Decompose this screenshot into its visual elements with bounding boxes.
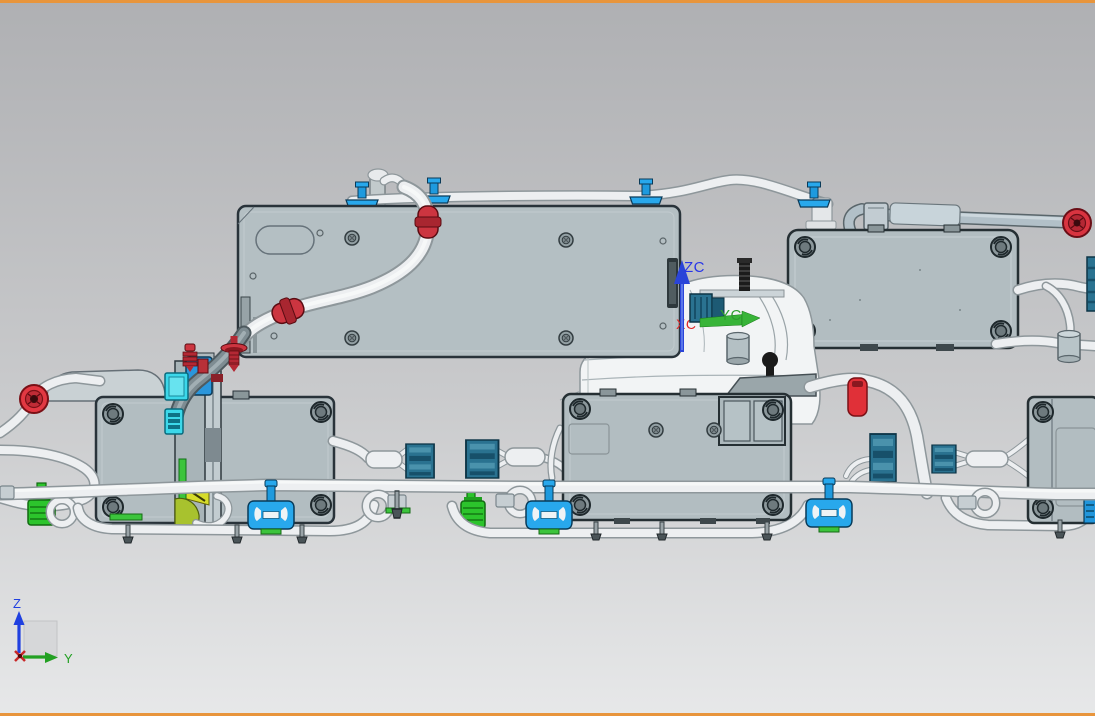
housing-cylinder[interactable] bbox=[727, 333, 749, 365]
triad-box bbox=[24, 621, 57, 656]
teal-connector[interactable] bbox=[870, 434, 896, 482]
teal-connector[interactable] bbox=[466, 440, 499, 478]
cad-viewport[interactable]: XC ZC YC bbox=[0, 0, 1095, 716]
corner-boss bbox=[991, 237, 1011, 257]
module-screw bbox=[707, 423, 721, 437]
corner-boss bbox=[570, 495, 590, 515]
corner-boss bbox=[1033, 402, 1053, 422]
right-module[interactable] bbox=[1028, 397, 1095, 523]
cyan-connector-1[interactable] bbox=[165, 373, 188, 400]
green-pad bbox=[110, 514, 142, 520]
module-screw bbox=[649, 423, 663, 437]
tube-strap[interactable] bbox=[0, 486, 14, 499]
panel-screw bbox=[559, 331, 573, 345]
corner-boss bbox=[570, 399, 590, 419]
corner-boss bbox=[311, 495, 331, 515]
corner-boss bbox=[795, 237, 815, 257]
triad-label-y: Y bbox=[64, 651, 73, 666]
corner-boss bbox=[763, 400, 783, 420]
tube-sleeve[interactable] bbox=[966, 451, 1008, 467]
red-grommet-disc-left[interactable] bbox=[20, 385, 48, 413]
corner-boss bbox=[311, 402, 331, 422]
corner-boss bbox=[763, 495, 783, 515]
tube-sleeve[interactable] bbox=[505, 448, 545, 466]
cad-scene[interactable]: XC ZC YC bbox=[0, 0, 1095, 716]
edge-connector-teal[interactable] bbox=[1087, 257, 1095, 311]
panel-screw bbox=[345, 331, 359, 345]
tube-strap[interactable] bbox=[958, 496, 976, 509]
teal-connector[interactable] bbox=[406, 444, 434, 478]
module-blue-connector[interactable] bbox=[1084, 499, 1095, 523]
tube-strap[interactable] bbox=[496, 494, 514, 507]
threaded-stud[interactable] bbox=[737, 258, 752, 291]
wcs-label-yc: YC bbox=[720, 307, 742, 324]
red-tube-stub[interactable] bbox=[848, 378, 867, 416]
wcs-label-zc: ZC bbox=[684, 259, 705, 276]
corner-boss bbox=[103, 404, 123, 424]
panel-screw bbox=[559, 233, 573, 247]
main-tray-panel[interactable] bbox=[238, 206, 680, 357]
center-module[interactable] bbox=[563, 389, 791, 524]
cyan-connector-2[interactable] bbox=[165, 409, 183, 434]
upper-right-module[interactable] bbox=[788, 225, 1018, 351]
standoff-cylinder[interactable] bbox=[1058, 331, 1080, 363]
panel-screw bbox=[345, 231, 359, 245]
corner-boss bbox=[1033, 498, 1053, 518]
red-tube-clip[interactable] bbox=[415, 206, 441, 238]
triad-label-z: Z bbox=[13, 596, 21, 611]
red-fitting bbox=[211, 374, 223, 382]
top-frame-border bbox=[0, 0, 1095, 3]
red-fitting bbox=[198, 359, 208, 373]
teal-connector[interactable] bbox=[932, 445, 956, 473]
red-grommet-disc-right[interactable] bbox=[1063, 209, 1091, 237]
tube-sleeve[interactable] bbox=[366, 451, 402, 468]
